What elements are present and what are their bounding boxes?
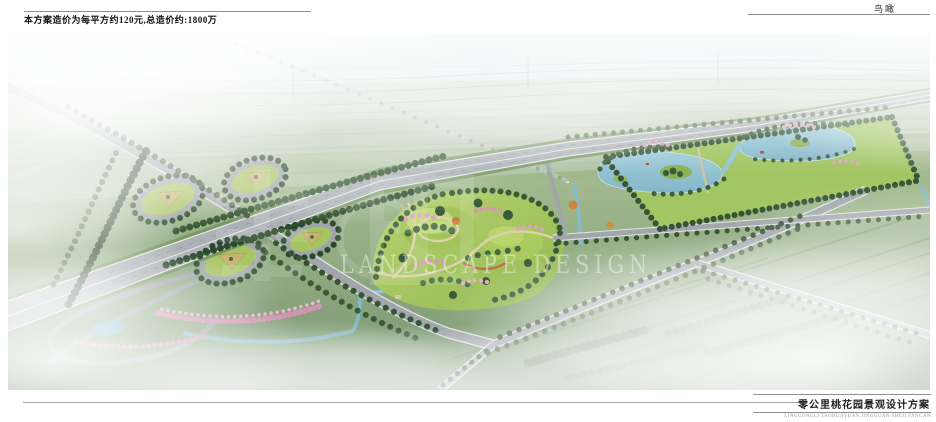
project-title: 零公里桃花园景观设计方案 (753, 394, 931, 413)
footer-rule (23, 402, 799, 403)
aerial-rendering: LANDSCAPE DESIGN (8, 33, 930, 390)
cost-note: 本方案造价为每平方约120元,总造价约:1800万 (24, 13, 217, 26)
drawing-sheet: 本方案造价为每平方约120元,总造价约:1800万 鸟瞰 (0, 0, 936, 422)
project-title-pinyin: LINGGONGLI TAOHUAYUAN JINGGUAN SHEJI FAN… (753, 414, 931, 419)
header-rule-left (24, 11, 311, 12)
watermark-text: LANDSCAPE DESIGN (340, 250, 652, 279)
title-block: 零公里桃花园景观设计方案 LINGGONGLI TAOHUAYUAN JINGG… (753, 394, 931, 419)
header-rule-right (748, 14, 930, 15)
